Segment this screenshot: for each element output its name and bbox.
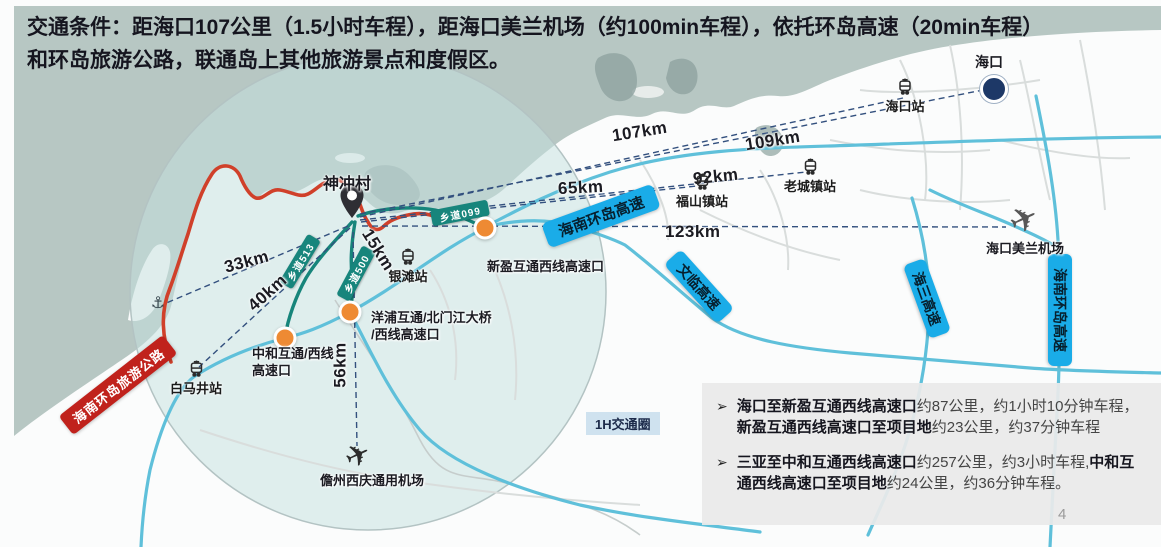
note-segment: 约257公里，约3小时车程, <box>917 454 1090 471</box>
note-text: 三亚至中和互通西线高速口约257公里，约3小时车程,中和互通西线高速口至项目地约… <box>737 452 1145 495</box>
note-segment: 约87公里，约1小时10分钟车程， <box>917 398 1139 415</box>
city-circle-icon <box>980 75 1008 103</box>
anchor-icon: ⚓ <box>151 293 165 313</box>
station-label: 海口站 <box>885 96 924 115</box>
distance-label-65km: 65km <box>558 177 604 199</box>
station-laocheng: 老城镇站 <box>784 158 836 195</box>
train-station-icon <box>897 78 912 95</box>
distance-label-123km: 123km <box>665 222 720 242</box>
one-hour-circle-label: 1H交通圈 <box>586 412 660 435</box>
station-label: 老城镇站 <box>784 176 836 195</box>
page-number: 4 <box>1058 506 1066 523</box>
bullet-arrow-icon: ➢ <box>716 452 728 495</box>
note-segment: 约24公里，约36分钟车程。 <box>887 475 1070 492</box>
bullet-arrow-icon: ➢ <box>716 396 728 439</box>
station-label: 白马井站 <box>170 378 222 397</box>
station-fushan: 福山镇站 <box>676 173 728 210</box>
note-bold-segment: 新盈互通西线高速口至项目地 <box>737 419 932 436</box>
train-station-icon <box>802 158 817 175</box>
interchange-label-xinying: 新盈互通西线高速口 <box>487 256 604 275</box>
interchange-dot-icon <box>339 301 362 324</box>
slide: 交通条件：距海口107公里（1.5小时车程），距海口美兰机场（约100min车程… <box>0 0 1161 547</box>
interchange-label-yangpu: 洋浦互通/北门江大桥 /西线高速口 <box>371 310 492 344</box>
interchange-label-zhonghe: 中和互通/西线 高速口 <box>252 346 334 380</box>
airport-label-danzhou: 儋州西庆通用机场 <box>320 470 424 489</box>
station-haikou: 海口站 <box>885 78 924 115</box>
train-station-icon <box>400 248 415 265</box>
village-label: 神冲村 <box>323 170 371 194</box>
highway-banner-hainan-ring-east: 海南环岛高速 <box>1048 254 1072 366</box>
note-item: ➢ 海口至新盈互通西线高速口约87公里，约1小时10分钟车程，新盈互通西线高速口… <box>716 396 1145 439</box>
airport-label-meilan: 海口美兰机场 <box>986 238 1064 257</box>
station-baimajing: 白马井站 <box>170 360 222 397</box>
notes-panel: ➢ 海口至新盈互通西线高速口约87公里，约1小时10分钟车程，新盈互通西线高速口… <box>702 383 1161 525</box>
note-text: 海口至新盈互通西线高速口约87公里，约1小时10分钟车程，新盈互通西线高速口至项… <box>737 396 1145 439</box>
interchange-dot-icon <box>474 217 497 240</box>
train-station-icon <box>188 360 203 377</box>
note-bold-segment: 海口至新盈互通西线高速口 <box>737 398 917 415</box>
note-item: ➢ 三亚至中和互通西线高速口约257公里，约3小时车程,中和互通西线高速口至项目… <box>716 452 1145 495</box>
train-station-icon <box>694 173 709 190</box>
island-shape <box>632 86 664 98</box>
city-label: 海口 <box>975 52 1003 72</box>
note-bold-segment: 三亚至中和互通西线高速口 <box>737 454 917 471</box>
station-yintan: 银滩站 <box>388 248 427 285</box>
station-label: 福山镇站 <box>676 191 728 210</box>
note-segment: 约23公里，约37分钟车程 <box>932 419 1100 436</box>
page-title: 交通条件：距海口107公里（1.5小时车程），距海口美兰机场（约100min车程… <box>27 12 1045 77</box>
station-label: 银滩站 <box>388 266 427 285</box>
